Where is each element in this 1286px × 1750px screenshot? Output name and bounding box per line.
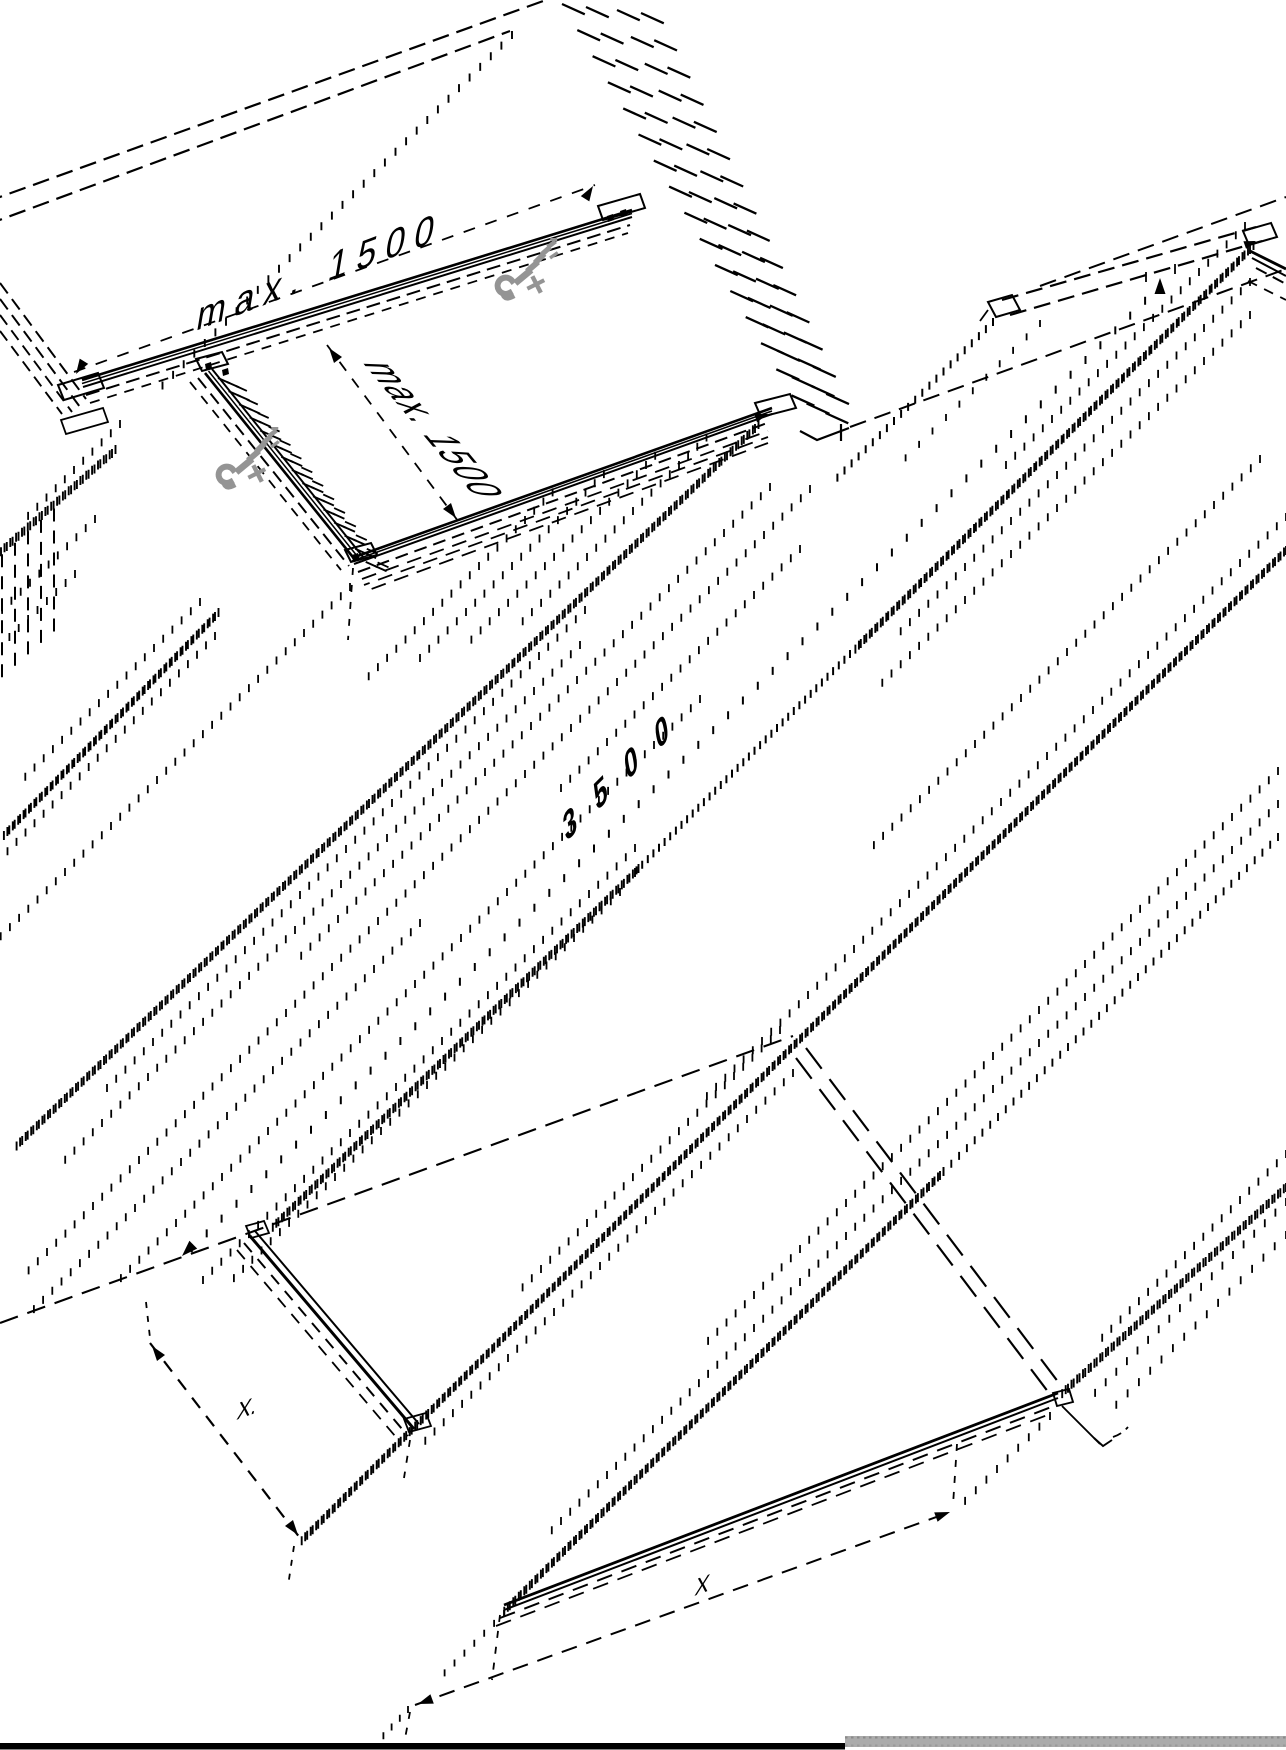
- svg-text:X.: X.: [235, 1391, 260, 1427]
- svg-text:X: X: [693, 1569, 712, 1602]
- svg-text:max. 1500: max. 1500: [193, 202, 447, 340]
- svg-text:max. 1500: max. 1500: [352, 362, 517, 499]
